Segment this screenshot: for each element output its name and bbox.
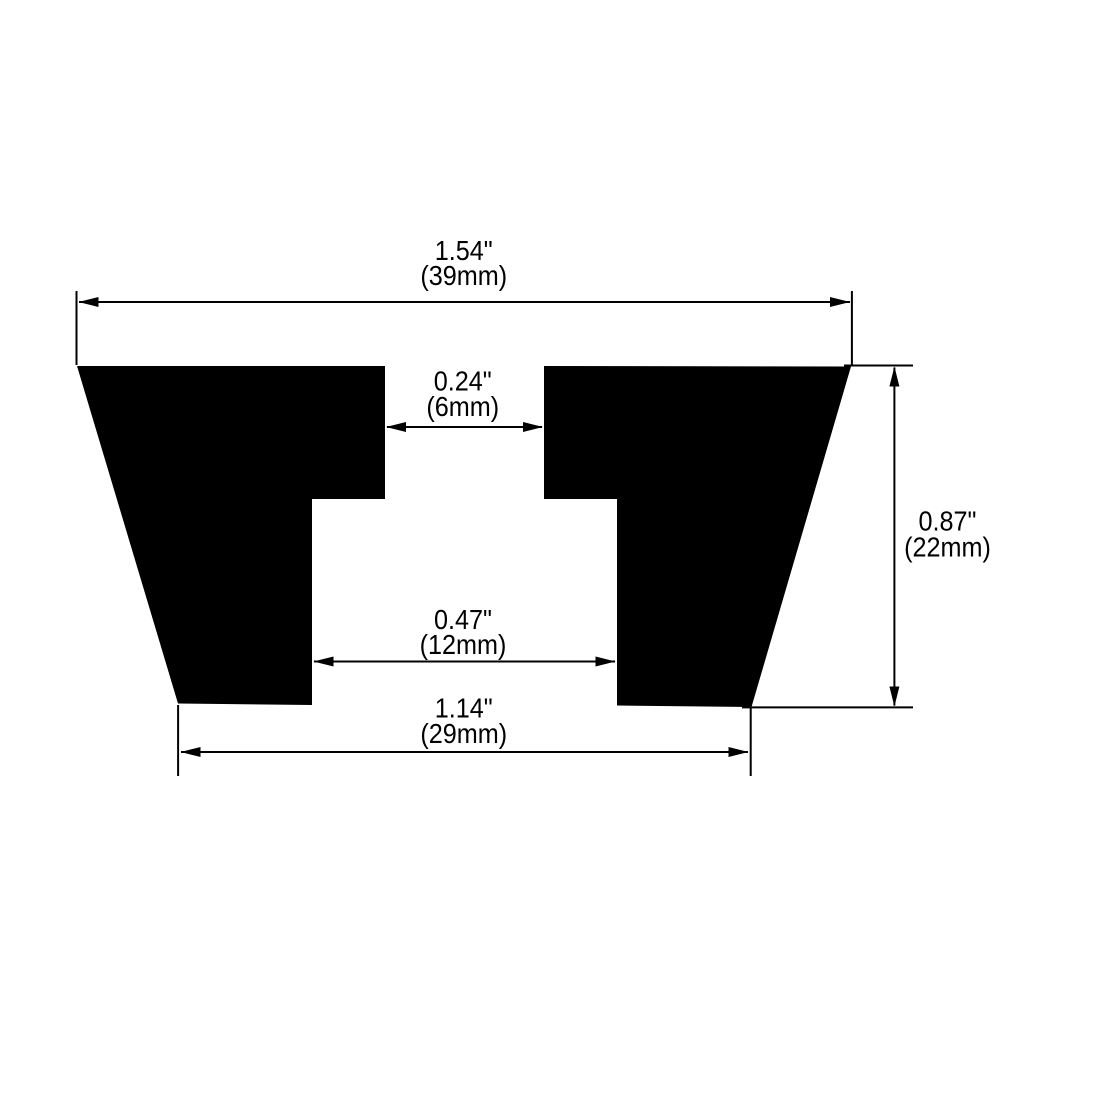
svg-text:(22mm): (22mm) [904, 531, 991, 562]
svg-text:(29mm): (29mm) [420, 718, 507, 749]
svg-text:(39mm): (39mm) [420, 260, 507, 291]
svg-text:(6mm): (6mm) [426, 391, 499, 422]
svg-text:(12mm): (12mm) [420, 629, 507, 660]
